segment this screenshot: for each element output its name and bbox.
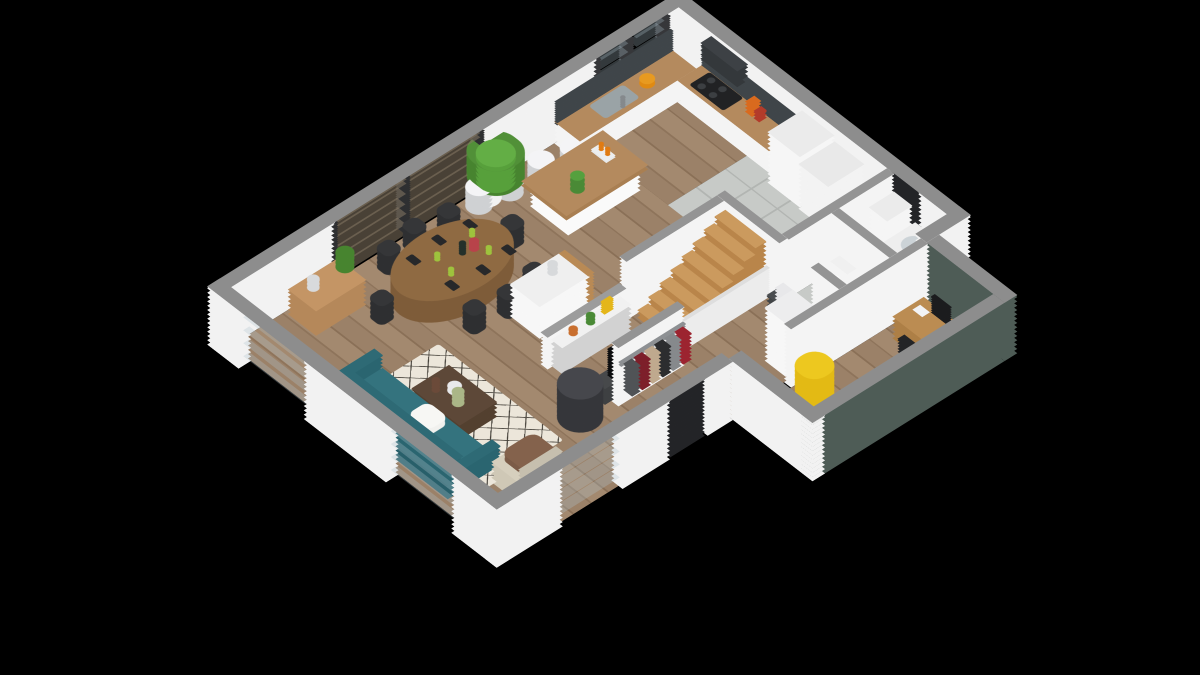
wall-sw-c (207, 48, 1048, 628)
round-rug-inner (207, 48, 1048, 628)
kitchen-counter-ne (207, 48, 1048, 628)
island-plant (207, 48, 1048, 628)
stair-step-5 (207, 48, 1048, 628)
sideboard-vase (207, 48, 1048, 628)
hall-closet (207, 48, 1048, 628)
coat-dark (207, 48, 1048, 628)
coat-black (207, 48, 1048, 628)
fruit-bowl (207, 48, 1048, 628)
stair-step-1 (207, 48, 1048, 628)
place-mat-1 (207, 48, 1048, 628)
stair-step-6 (207, 48, 1048, 628)
cap-int-kitchen-a (207, 48, 1048, 628)
toilet-tank (207, 48, 1048, 628)
sofa-pillow (207, 48, 1048, 628)
sofa-seat-2 (207, 48, 1048, 628)
sliding-door-glass (207, 48, 1048, 628)
wine-bottle (207, 48, 1048, 628)
table-flowers (207, 48, 1048, 628)
wall-se-c (207, 48, 1048, 628)
island-base (207, 48, 1048, 628)
stove-burner-4 (207, 48, 1048, 628)
floor-tile-laundry (207, 48, 1048, 628)
monstera-leaves-top (207, 48, 1048, 628)
console-bowl (207, 48, 1048, 628)
stove-burner-3 (207, 48, 1048, 628)
washing-machine (207, 48, 1048, 628)
kitchen-faucet (207, 48, 1048, 628)
tv-screen (207, 48, 1048, 628)
desk-laptop (207, 48, 1048, 628)
fridge (207, 48, 1048, 628)
desk-papers (207, 48, 1048, 628)
wall-ne-b (207, 48, 1048, 628)
cereal-box-1 (207, 48, 1048, 628)
console-frame (207, 48, 1048, 628)
tv-unit (207, 48, 1048, 628)
monstera-pot (207, 48, 1048, 628)
coat-gray (207, 48, 1048, 628)
wall-sw-b (207, 48, 1048, 628)
sofa-base (207, 48, 1048, 628)
island-tray (207, 48, 1048, 628)
floor-tile-kitchen (207, 48, 1048, 628)
place-mat-5 (207, 48, 1048, 628)
coffee-candle (207, 48, 1048, 628)
window-nw-frame1 (207, 48, 1048, 628)
juice-glass-2 (207, 48, 1048, 628)
window-nw-frame2 (207, 48, 1048, 628)
place-mat-3 (207, 48, 1048, 628)
wall-office-se (207, 48, 1048, 628)
wall-nw-b (207, 48, 1048, 628)
wall-office-ne (207, 48, 1048, 628)
dining-chair-3 (207, 48, 1048, 628)
cap-int-kitchen-b (207, 48, 1048, 628)
green-cup-2 (207, 48, 1048, 628)
commode (207, 48, 1048, 628)
sofa-arm-1 (207, 48, 1048, 628)
stair-railing (207, 48, 1048, 628)
wall-office-e (207, 48, 1048, 628)
dining-chair-5 (207, 48, 1048, 628)
stove-burner-2 (207, 48, 1048, 628)
floor-wood-office (207, 48, 1048, 628)
beige-armchair (207, 48, 1048, 628)
sideboard-plant (207, 48, 1048, 628)
window-nw-frame3 (207, 48, 1048, 628)
sofa-arm-2 (207, 48, 1048, 628)
sliding-door-frame2 (207, 48, 1048, 628)
coffee-table (207, 48, 1048, 628)
cap-se (207, 48, 1048, 628)
wall-int-laundry (207, 48, 1048, 628)
place-mat-4 (207, 48, 1048, 628)
range-hood (207, 48, 1048, 628)
floor-wood-kitchen (207, 48, 1048, 628)
laundry-door-black (207, 48, 1048, 628)
bar-stool-1 (207, 48, 1048, 628)
place-mat-6 (207, 48, 1048, 628)
cereal-box-2 (207, 48, 1048, 628)
commode-wood-front (207, 48, 1048, 628)
wall-rack (207, 48, 1048, 628)
sliding-door-frame3 (207, 48, 1048, 628)
window-sw-1 (207, 48, 1048, 628)
sideboard (207, 48, 1048, 628)
cap-int-laundry (207, 48, 1048, 628)
monstera-leaves (207, 48, 1048, 628)
cap-int-office (207, 48, 1048, 628)
water-heater (207, 48, 1048, 628)
commode-vase (207, 48, 1048, 628)
dining-table (207, 48, 1048, 628)
dining-chair-6 (207, 48, 1048, 628)
floor-tile-wc (207, 48, 1048, 628)
console-plant (207, 48, 1048, 628)
bar-stool-2 (207, 48, 1048, 628)
green-cup-1 (207, 48, 1048, 628)
dining-chair-2 (207, 48, 1048, 628)
wall-nw-a (207, 48, 1048, 628)
window-nw-pane2 (207, 48, 1048, 628)
stair-step-8 (207, 48, 1048, 628)
island-top (207, 48, 1048, 628)
window-nw-pane1 (207, 48, 1048, 628)
kitchen-sink (207, 48, 1048, 628)
floorplan-3d-render (0, 0, 1200, 675)
coffee-plant (207, 48, 1048, 628)
cap-ne-jog (207, 48, 1048, 628)
dining-chair-4 (207, 48, 1048, 628)
cap-nw (207, 48, 1048, 628)
stair-step-7 (207, 48, 1048, 628)
wall-int-wc (207, 48, 1048, 628)
credenza-books-1 (207, 48, 1048, 628)
cap-office-se (207, 48, 1048, 628)
coffee-bowl (207, 48, 1048, 628)
backsplash-ne (207, 48, 1048, 628)
stair-step-4 (207, 48, 1048, 628)
ball-chair (207, 48, 1048, 628)
desk-printer (207, 48, 1048, 628)
bar-stool-3 (207, 48, 1048, 628)
toilet-bowl (207, 48, 1048, 628)
front-door (207, 48, 1048, 628)
sofa-back (207, 48, 1048, 628)
brown-throw (207, 48, 1048, 628)
console-table (207, 48, 1048, 628)
wall-ne-jog (207, 48, 1048, 628)
stair-step-3 (207, 48, 1048, 628)
bar-stool-4 (207, 48, 1048, 628)
desk-monitor (207, 48, 1048, 628)
floor-wood-main (207, 48, 1048, 628)
cap-ne (207, 48, 1048, 628)
cap-int-wc (207, 48, 1048, 628)
place-mat-2 (207, 48, 1048, 628)
armchair-back (207, 48, 1048, 628)
juice-glass-1 (207, 48, 1048, 628)
cap-sw (207, 48, 1048, 628)
window-se (207, 48, 1048, 628)
wall-int-kitchen-b (207, 48, 1048, 628)
coat-red-2 (207, 48, 1048, 628)
cap-rack (207, 48, 1048, 628)
wall-int-kitchen-a (207, 48, 1048, 628)
cap-office-ne (207, 48, 1048, 628)
office-plant (207, 48, 1048, 628)
half-wall (207, 48, 1048, 628)
wall-int-office (207, 48, 1048, 628)
stove (207, 48, 1048, 628)
window-sw-2 (207, 48, 1048, 628)
wall-ne-a (207, 48, 1048, 628)
green-cup-3 (207, 48, 1048, 628)
wall-nw-c (207, 48, 1048, 628)
credenza-books-2 (207, 48, 1048, 628)
office-chair (207, 48, 1048, 628)
coat-rail (207, 48, 1048, 628)
round-rug (207, 48, 1048, 628)
washer-door (207, 48, 1048, 628)
cap-int-stairs (207, 48, 1048, 628)
sliding-door-frame1 (207, 48, 1048, 628)
stair-step-2 (207, 48, 1048, 628)
wall-int-stairs (207, 48, 1048, 628)
office-chair-back (207, 48, 1048, 628)
coat-red-1 (207, 48, 1048, 628)
green-cup-4 (207, 48, 1048, 628)
living-rug (207, 48, 1048, 628)
wall-se-b (207, 48, 1048, 628)
backsplash-nw (207, 48, 1048, 628)
wall-sw-a (207, 48, 1048, 628)
coat-tan (207, 48, 1048, 628)
house-floorplan (207, 48, 1048, 628)
hall-credenza (207, 48, 1048, 628)
sofa-seat-1 (207, 48, 1048, 628)
office-desk (207, 48, 1048, 628)
cap-office-e (207, 48, 1048, 628)
yellow-armchair (207, 48, 1048, 628)
dining-chair-1 (207, 48, 1048, 628)
kitchen-counter-nw (207, 48, 1048, 628)
dining-chair-8 (207, 48, 1048, 628)
wall-se-a (207, 48, 1048, 628)
dining-chair-7 (207, 48, 1048, 628)
pantry-cabinet (207, 48, 1048, 628)
stove-burner-1 (207, 48, 1048, 628)
